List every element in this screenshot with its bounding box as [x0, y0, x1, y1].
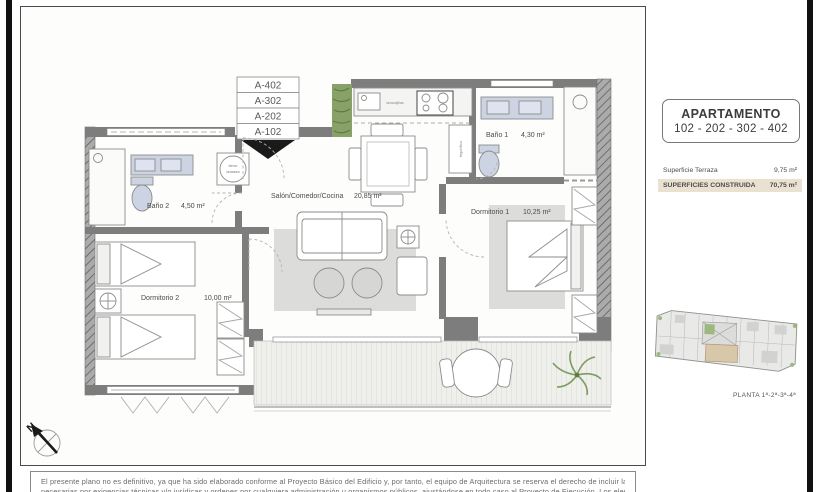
disclaimer-line-2: necesarias por exigencias técnicas y/o j…	[41, 487, 625, 492]
floor-plan-sheet: A-402 A-302 A-202 A-102	[0, 0, 819, 492]
surface-table: Superficie Terraza 9,75 m² SUPERFICIES C…	[658, 164, 802, 192]
keyplan-highlighted-unit	[705, 344, 738, 362]
lavavajillas-label: lavavajillas	[386, 101, 404, 105]
svg-text:Dormitorio 2: Dormitorio 2	[141, 295, 179, 302]
unit-label-a102: A-102	[255, 127, 282, 138]
tv-unit	[317, 309, 371, 315]
unit-label-a302: A-302	[255, 96, 282, 107]
lavadora-label: lavadora	[226, 170, 239, 174]
termo-label: termo	[229, 164, 238, 168]
coffee-table	[352, 268, 382, 298]
svg-text:10,25 m²: 10,25 m²	[523, 209, 551, 216]
svg-text:4,50 m²: 4,50 m²	[181, 203, 205, 210]
apartment-units: 102 - 202 - 302 - 402	[674, 123, 788, 135]
sliding-door	[273, 337, 441, 342]
armchair	[397, 257, 427, 295]
keyplan-drawing	[650, 305, 802, 385]
surface-row-construida: SUPERFICIES CONSTRUIDA 70,75 m²	[658, 179, 802, 192]
bathroom-1-label: Baño 1 4,30 m²	[486, 132, 545, 139]
surface-value: 70,75 m²	[770, 182, 797, 189]
surface-value: 9,75 m²	[774, 167, 797, 174]
svg-text:Baño 1: Baño 1	[486, 132, 508, 139]
north-compass: N	[25, 421, 60, 456]
bathroom-2: termo lavadora	[89, 149, 249, 225]
svg-text:Baño 2: Baño 2	[147, 203, 169, 210]
apartment-title-box: APARTAMENTO 102 - 202 - 302 - 402	[662, 99, 800, 143]
keyplan: PLANTA 1ª-2ª-3ª-4ª	[650, 305, 802, 399]
keyplan-caption: PLANTA 1ª-2ª-3ª-4ª	[650, 392, 802, 399]
svg-text:10,00 m²: 10,00 m²	[204, 295, 232, 302]
floor-plan-frame: A-402 A-302 A-202 A-102	[20, 6, 646, 466]
living-room	[274, 212, 427, 315]
unit-label-a402: A-402	[255, 81, 282, 92]
info-panel: APARTAMENTO 102 - 202 - 302 - 402 Superf…	[650, 0, 802, 464]
page-border-left	[6, 0, 12, 492]
page-border-right	[807, 0, 813, 492]
sliding-door	[479, 337, 577, 342]
surface-label: Superficie Terraza	[663, 167, 718, 174]
keyplan-core	[702, 322, 737, 345]
living-room-label: Salón/Comedor/Cocina 20,85 m²	[271, 193, 382, 200]
apartment-title: APARTAMENTO	[681, 107, 781, 121]
surface-row-terraza: Superficie Terraza 9,75 m²	[658, 164, 802, 177]
bedroom-2	[95, 242, 244, 375]
floor-plan-drawing: A-402 A-302 A-202 A-102	[21, 7, 643, 463]
svg-text:20,85 m²: 20,85 m²	[354, 193, 382, 200]
svg-text:Salón/Comedor/Cocina: Salón/Comedor/Cocina	[271, 193, 343, 200]
svg-text:Dormitorio 1: Dormitorio 1	[471, 209, 509, 216]
bedroom-2-label: Dormitorio 2 10,00 m²	[141, 295, 232, 302]
frigorifico-label: frigorífico	[458, 140, 463, 157]
disclaimer-box: El presente plano no es definitivo, ya q…	[30, 471, 636, 492]
disclaimer-line-1: El presente plano no es definitivo, ya q…	[41, 477, 625, 487]
hedge-plant	[332, 84, 352, 137]
surface-label: SUPERFICIES CONSTRUIDA	[663, 182, 756, 189]
terrace	[254, 337, 611, 411]
coffee-table	[314, 268, 344, 298]
bathroom-2-label: Baño 2 4,50 m²	[147, 203, 205, 210]
window-awnings	[121, 397, 229, 413]
svg-text:4,30 m²: 4,30 m²	[521, 132, 545, 139]
unit-label-stack: A-402 A-302 A-202 A-102	[237, 77, 299, 159]
unit-label-a202: A-202	[255, 112, 282, 123]
